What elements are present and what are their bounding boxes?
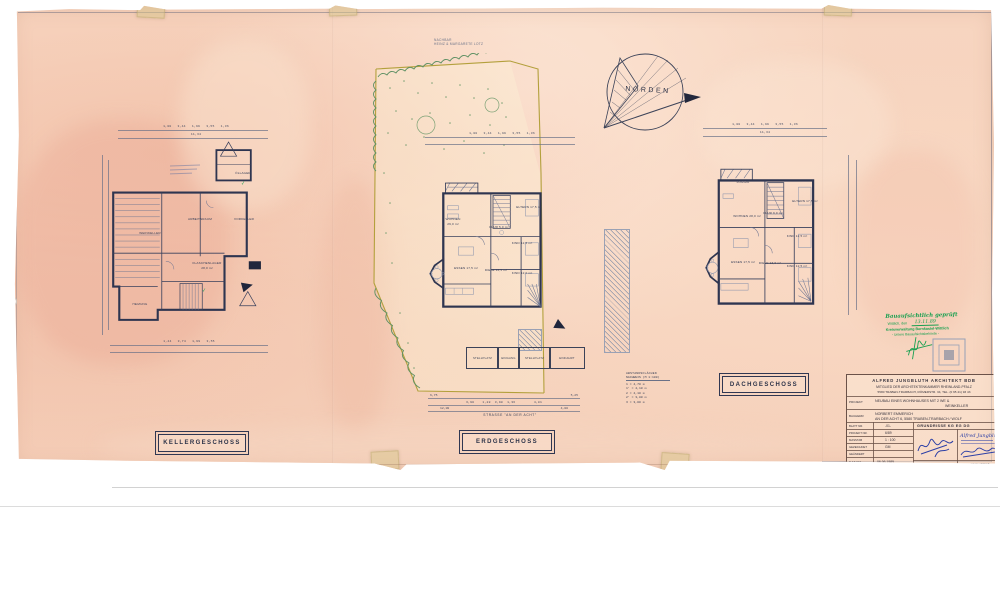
kg-dimension-line-left2 — [108, 160, 109, 330]
square-seal-icon — [932, 338, 966, 372]
dg-dimension-line-right — [848, 155, 849, 315]
titleblock-architect-name: ALFRED JUNGBLUTH ARCHITEKT BDB — [847, 378, 1000, 383]
geaendert-label: GEÄNDERT — [849, 452, 865, 456]
dg-dimension-numbers-2: 11,34 — [705, 130, 825, 134]
scanned-blueprint-page: NACHBAR HEINZ & MARGARETE LOTZ NORDEN — [0, 0, 1000, 599]
legend-rows: 1 = 4,70 m 1' = 4,10 m 2 = 4,10 m 2' = 3… — [626, 382, 678, 405]
street-hatch-area — [604, 229, 630, 353]
paper-stain — [850, 150, 980, 340]
green-checkmark: ✓ — [202, 288, 207, 295]
abstandsflaechen-legend: ABSTANDSFLÄCHEN NACHWEIS (M 1:100) 1 = 4… — [626, 371, 678, 405]
architekt-signature — [959, 444, 1000, 459]
stall-label: EINGANG — [501, 356, 515, 360]
bauherr-value-2: AN DER ACHT 6, 5580 TRABEN-TRARBACH / WO… — [875, 417, 962, 421]
kg-dimension-numbers-1: 1,00 3,44 1,99 3,55 1,36 — [122, 124, 270, 128]
green-checkmark: ✓ — [241, 181, 246, 188]
projnr-label: PROJEKT NR. — [849, 431, 867, 435]
room-label-kind1: KIND 12,5 m² — [774, 234, 820, 238]
dg-dimension-line-2 — [703, 136, 827, 137]
tb-rule — [847, 457, 913, 458]
masstab-value: 1 : 100 — [885, 438, 895, 442]
street-label: STRASSE "AN DER ACHT" — [450, 413, 570, 417]
room-label-flur: FLUR 5,0 m² — [476, 225, 522, 229]
projekt-value-1: NEUBAU EINES WOHNHAUSES MIT 2 WE & — [875, 399, 949, 403]
blatt-value: -01- — [885, 424, 891, 428]
sheet-edge-shadow — [10, 464, 996, 465]
content-value: GRUNDRISSE KG EG DG — [917, 424, 970, 428]
room-label-arbeitsraum: ARBEITSRAUM — [177, 217, 223, 221]
plan-title-erdgeschoss: ERDGESCHOSS — [462, 433, 552, 451]
room-label-diele: DIELE 13,0 m² — [747, 261, 793, 265]
scan-edge-line-1 — [112, 487, 998, 488]
gezeichnet-value: GM — [885, 445, 890, 449]
tb-rule — [847, 409, 1000, 410]
stamp-line-2-date: 13.11.89 — [911, 319, 939, 326]
tb-rule — [847, 422, 1000, 423]
kg-dimension-line — [118, 138, 268, 139]
dg-dimension-line-right2 — [856, 160, 857, 310]
stamp-line-3: Kreisverwaltung Bernkastel-Wittlich — [886, 326, 949, 332]
stall-eingang: EINGANG — [497, 347, 520, 369]
room-label-vorkeller: VORKELLER — [221, 217, 267, 221]
stall-stellplatz-2: STELLPLATZ — [518, 347, 551, 369]
bauherr-label: BAUHERR — [849, 414, 864, 418]
eg-dimension-numbers-3: 12,004,00 — [440, 406, 568, 410]
scan-edge-line-2 — [0, 506, 1000, 507]
room-label-loggia: LOGGIA — [720, 180, 766, 184]
neighbor-note: NACHBAR HEINZ & MARGARETE LOTZ — [434, 38, 483, 46]
eg-dimension-line-top — [425, 137, 575, 138]
blueprint-sheet: NACHBAR HEINZ & MARGARETE LOTZ NORDEN — [10, 5, 996, 470]
tb-rule — [847, 450, 913, 451]
eg-dimension-line-top2 — [425, 144, 575, 145]
stamp-line-2-label: Wittlich, den — [888, 321, 908, 326]
tb-rule — [847, 436, 913, 437]
room-label-flur: FLUR 9,0 m² — [750, 211, 796, 215]
dg-dimension-numbers-1: 1,00 3,44 1,99 3,55 1,36 — [705, 122, 825, 126]
room-label-flaschenlager-area: 28,0 m² — [184, 266, 230, 270]
blatt-label: BLATT NR. — [849, 424, 863, 428]
stall-label: STELLPLATZ — [525, 356, 544, 360]
room-label-wohnen: WOHNEN — [430, 217, 476, 221]
architekt-stamp-line — [961, 443, 997, 444]
room-label-kind1: KIND 12,5 m² — [499, 241, 545, 245]
neighbor-note-line2: HEINZ & MARGARETE LOTZ — [434, 42, 483, 46]
adhesive-tape — [371, 450, 400, 470]
bauherr-signature — [915, 433, 955, 459]
architekt-stamp-line — [961, 440, 993, 441]
plan-title-kellergeschoss-text: KELLERGESCHOSS — [163, 440, 241, 446]
dim-number: 12,00 — [440, 406, 449, 410]
legend-title-2: NACHWEIS (M 1:100) — [626, 375, 678, 379]
adhesive-tape — [329, 1, 358, 17]
stall-stellplatz-1: STELLPLATZ — [466, 347, 499, 369]
gezeichnet-label: GEZEICHNET — [849, 445, 867, 449]
eg-dimension-line-1 — [428, 398, 580, 399]
plan-title-erdgeschoss-text: ERDGESCHOSS — [476, 439, 538, 445]
tb-rule — [847, 396, 1000, 397]
architekt-stamp-name: Alfred Jungbluth — [960, 433, 1000, 439]
legend-divider — [626, 380, 670, 381]
stall-einfahrt: EINFAHRT — [549, 347, 585, 369]
room-label-heizung: HEIZUNG — [117, 302, 163, 306]
kg-dimension-line-left — [102, 155, 103, 335]
adhesive-tape — [660, 452, 689, 473]
title-block: ALFRED JUNGBLUTH ARCHITEKT BDB MITGLIED … — [846, 374, 1000, 466]
datum-label: DATUM — [849, 460, 861, 464]
signature-label-bauherr: BAUHERR — [913, 462, 957, 466]
room-label-oellager: ÖLLAGER — [220, 171, 266, 175]
dim-number: 5,25 — [571, 393, 578, 397]
dachgeschoss-plan-drawing — [702, 167, 832, 317]
room-label-kind2: KIND 12,0 m² — [499, 271, 545, 275]
kg-dimension-line — [118, 130, 268, 131]
erdgeschoss-plan-drawing — [426, 181, 560, 319]
kg-dimension-line-bottom2 — [110, 352, 268, 353]
stall-label: EINFAHRT — [559, 356, 574, 360]
kg-dimension-line-bottom — [110, 345, 268, 346]
projekt-value-2: WEINKELLER — [945, 404, 968, 408]
tb-rule — [847, 443, 913, 444]
adhesive-tape — [824, 1, 853, 17]
titleblock-membership: MITGLIED DER ARCHITEKTENKAMMER RHEINLAND… — [847, 385, 1000, 389]
punch-hole — [6, 296, 17, 307]
plan-title-dachgeschoss-text: DACHGESCHOSS — [730, 382, 798, 388]
dim-number: 4,00 — [561, 406, 568, 410]
projekt-label: PROJEKT — [849, 400, 863, 404]
eg-dimension-numbers-2: 3,90 1,28 3,98 1,36 4,81 — [430, 400, 578, 404]
room-label-eltern: ELTERN 17,5 m² — [506, 205, 552, 209]
masstab-label: MASSTAB — [849, 438, 862, 442]
fold-crease — [332, 5, 334, 470]
room-label-eltern: ELTERN 17,5 m² — [782, 199, 828, 203]
plan-title-dachgeschoss: DACHGESCHOSS — [722, 376, 806, 393]
bauherr-value-1: NORBERT EMMERICH — [875, 412, 913, 416]
dim-number: 6,75 — [430, 393, 437, 397]
kg-dimension-numbers-2: 11,34 — [122, 132, 270, 136]
eg-dimension-numbers-top: 1,00 3,44 1,99 3,55 1,36 — [428, 131, 576, 135]
dg-dimension-line-1 — [703, 128, 827, 129]
tb-rule — [913, 460, 1000, 461]
punch-hole — [6, 372, 17, 383]
room-label-wohnen-area: 29,0 m² — [430, 222, 476, 226]
titleblock-address: 5580 TRABEN-TRARBACH, RÖMERSTR. 34, TEL.… — [847, 390, 1000, 394]
eg-dimension-line-3 — [428, 411, 580, 412]
eg-dimension-numbers-1: 6,755,25 — [430, 393, 578, 397]
stall-label: STELLPLATZ — [473, 356, 492, 360]
signature-label-architekt: ARCHITEKT — [957, 462, 1000, 466]
tb-rule — [847, 429, 913, 430]
room-label-flaschenlager: FLASCHENLAGER — [184, 261, 230, 265]
room-label-weinkeller: WEINKELLER — [127, 231, 173, 235]
datum-value: 06.06.1989 — [877, 460, 894, 464]
projnr-value: 6/89 — [885, 431, 892, 435]
adhesive-tape — [137, 0, 166, 18]
kg-dimension-numbers-3: 1,44 3,74 1,99 3,55 — [114, 339, 264, 343]
plan-title-kellergeschoss: KELLERGESCHOSS — [158, 434, 246, 452]
frame-line-left — [16, 12, 17, 460]
